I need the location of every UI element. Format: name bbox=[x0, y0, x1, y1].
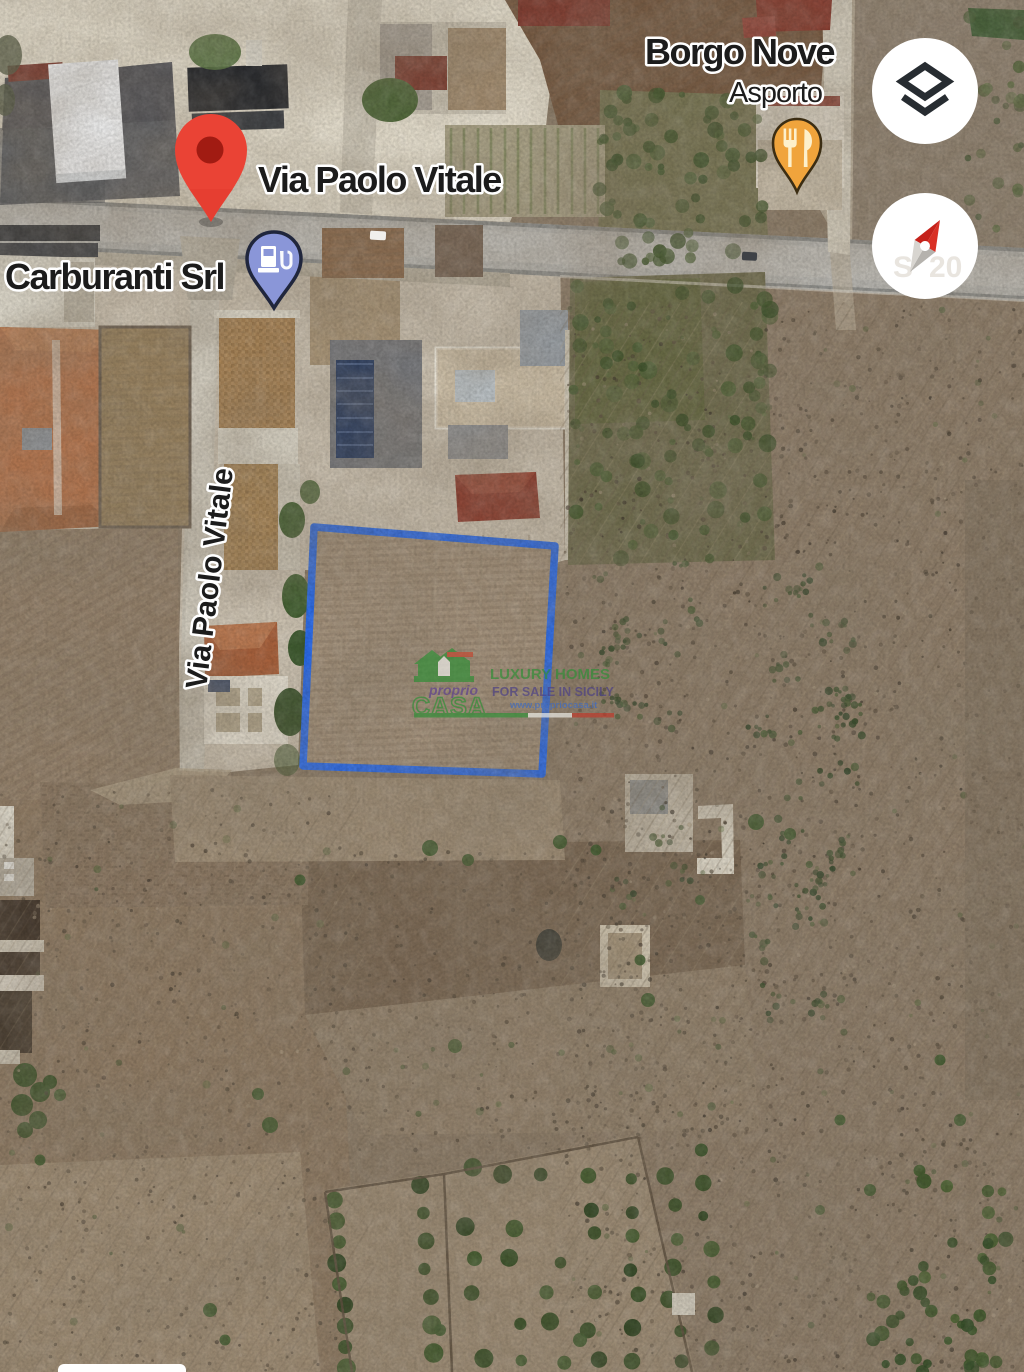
svg-text:20: 20 bbox=[929, 251, 962, 284]
svg-text:Via Paolo Vitale: Via Paolo Vitale bbox=[258, 159, 501, 200]
svg-text:FOR SALE IN SICILY: FOR SALE IN SICILY bbox=[492, 685, 614, 699]
svg-text:Borgo Nove: Borgo Nove bbox=[645, 31, 834, 72]
svg-text:l Carburanti Srl: l Carburanti Srl bbox=[0, 256, 224, 297]
svg-text:www.propriocasa.it: www.propriocasa.it bbox=[509, 700, 598, 711]
svg-text:S: S bbox=[893, 251, 913, 284]
svg-text:LUXURY HOMES: LUXURY HOMES bbox=[490, 666, 610, 683]
svg-text:Asporto: Asporto bbox=[729, 77, 822, 109]
svg-text:proprio: proprio bbox=[428, 682, 478, 698]
